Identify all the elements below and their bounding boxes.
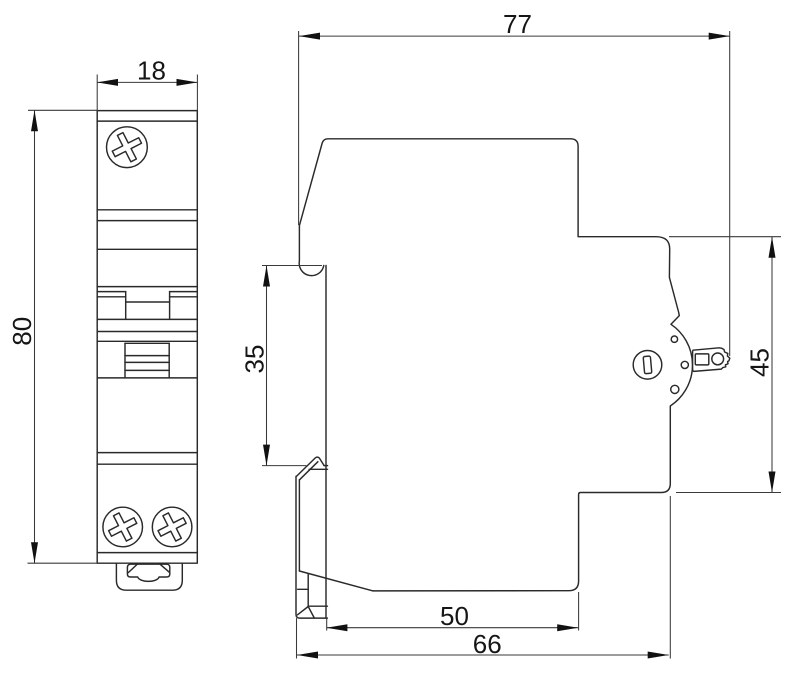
svg-text:35: 35 [240, 345, 270, 374]
svg-text:50: 50 [440, 601, 469, 631]
svg-text:66: 66 [473, 629, 502, 659]
svg-text:18: 18 [137, 56, 166, 86]
svg-text:45: 45 [745, 348, 775, 377]
svg-text:77: 77 [503, 9, 532, 39]
svg-text:80: 80 [7, 317, 37, 346]
